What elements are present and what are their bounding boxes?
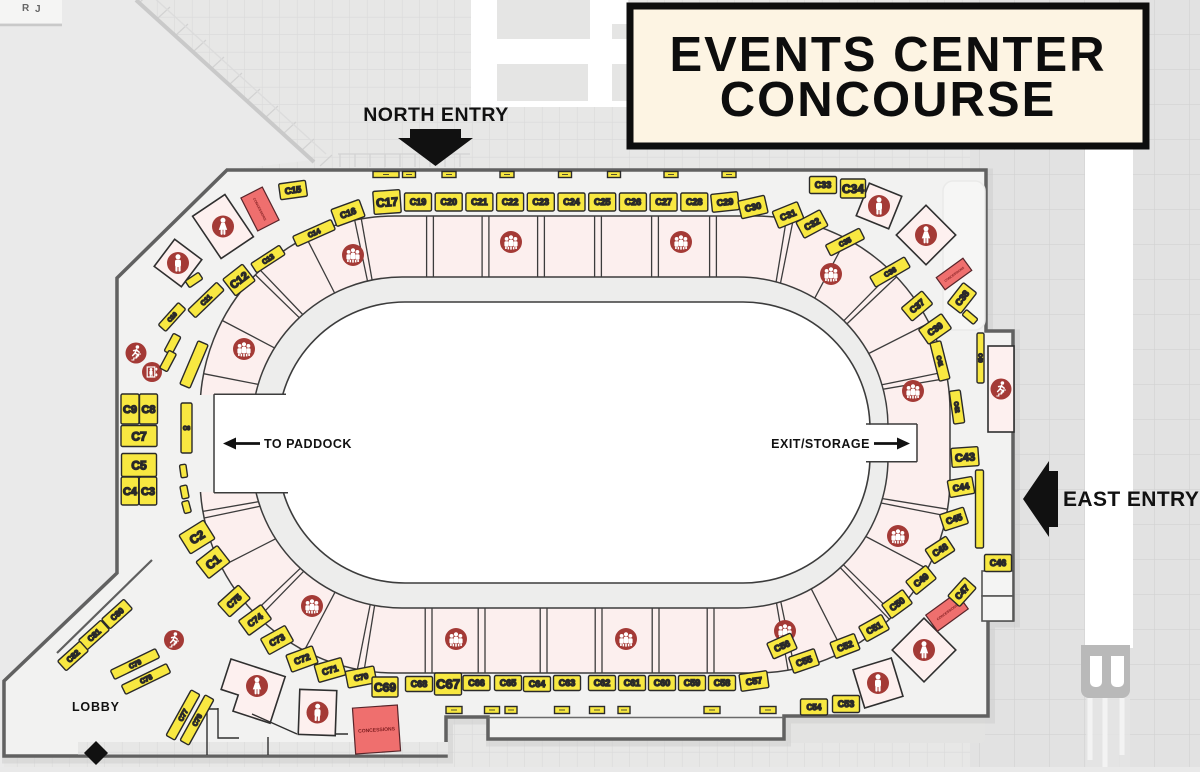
svg-text:C25: C25 [594, 197, 611, 207]
svg-text:C22: C22 [502, 197, 519, 207]
svg-text:C68: C68 [411, 679, 428, 689]
svg-text:C61: C61 [624, 678, 641, 688]
svg-text:C65: C65 [500, 678, 517, 688]
svg-text:C6: C6 [183, 426, 190, 432]
svg-text:C67: C67 [436, 677, 460, 692]
svg-text:C20: C20 [440, 197, 457, 207]
svg-text:C7: C7 [131, 429, 147, 443]
svg-text:C26: C26 [625, 197, 642, 207]
svg-text:C46: C46 [990, 558, 1007, 568]
svg-text:EAST ENTRY: EAST ENTRY [1063, 488, 1199, 511]
svg-text:C19: C19 [410, 197, 427, 207]
svg-text:C58: C58 [714, 678, 731, 688]
svg-text:C43: C43 [955, 451, 976, 464]
svg-text:C59: C59 [684, 678, 701, 688]
svg-text:C4: C4 [123, 486, 138, 498]
svg-text:C60: C60 [654, 678, 671, 688]
svg-text:C3: C3 [141, 486, 155, 498]
svg-text:C33: C33 [815, 180, 832, 190]
svg-text:EXIT/STORAGE: EXIT/STORAGE [771, 437, 870, 451]
svg-text:C34: C34 [842, 182, 864, 196]
svg-text:C69: C69 [374, 680, 396, 694]
svg-text:C17: C17 [376, 195, 399, 211]
svg-text:C8: C8 [141, 404, 155, 416]
svg-text:C28: C28 [686, 197, 703, 207]
svg-text:LOBBY: LOBBY [72, 700, 120, 714]
svg-text:C54: C54 [807, 703, 822, 712]
svg-text:C62: C62 [594, 678, 611, 688]
svg-text:C27: C27 [655, 197, 672, 207]
svg-text:C21: C21 [471, 197, 488, 207]
svg-text:NORTH ENTRY: NORTH ENTRY [363, 104, 509, 126]
svg-text:C64: C64 [529, 679, 546, 689]
svg-text:R: R [22, 3, 30, 14]
svg-text:C66: C66 [468, 678, 485, 688]
svg-text:C53: C53 [838, 699, 855, 709]
svg-text:TO PADDOCK: TO PADDOCK [264, 437, 352, 451]
svg-text:C29: C29 [716, 196, 733, 208]
svg-text:C5: C5 [131, 458, 147, 472]
svg-text:CONCOURSE: CONCOURSE [720, 73, 1057, 127]
svg-text:C9: C9 [123, 404, 137, 416]
svg-text:J: J [35, 4, 41, 15]
svg-text:C23: C23 [533, 197, 550, 207]
svg-text:C63: C63 [559, 678, 576, 688]
svg-text:C24: C24 [563, 197, 580, 207]
svg-text:C40: C40 [977, 353, 983, 362]
